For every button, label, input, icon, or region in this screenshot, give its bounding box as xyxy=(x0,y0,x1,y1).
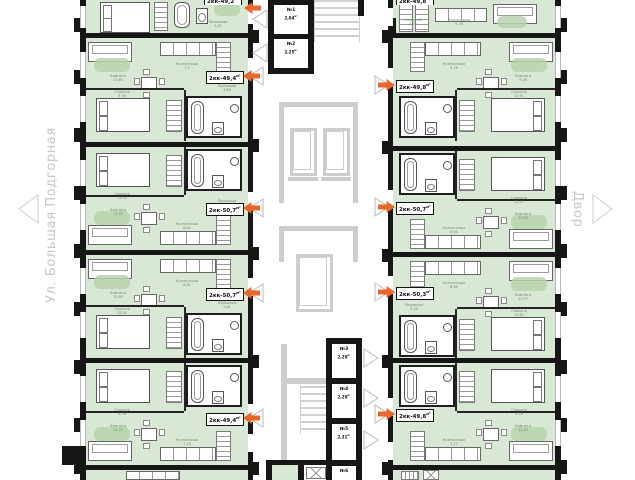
party-wall xyxy=(80,358,253,363)
balcony-cell: №22,25м² xyxy=(274,39,308,68)
service-wall xyxy=(298,465,304,480)
window xyxy=(80,376,86,402)
window xyxy=(555,312,561,338)
chair-icon xyxy=(134,213,140,220)
rug-icon xyxy=(511,58,547,72)
chair-icon xyxy=(476,78,482,85)
kitchen-counter-icon xyxy=(425,261,481,275)
rug-icon xyxy=(497,16,527,28)
apartment-partial xyxy=(86,470,248,480)
rug-icon xyxy=(94,58,130,72)
elevator-sill xyxy=(288,177,318,181)
wardrobe-icon xyxy=(216,215,231,245)
direction-triangle-left xyxy=(18,194,40,224)
bed-icon xyxy=(491,317,545,351)
window xyxy=(80,312,86,338)
interior-wall xyxy=(86,88,184,90)
party-wall xyxy=(80,465,253,470)
wardrobe-icon xyxy=(166,371,182,403)
room-label: Комната 13,45 xyxy=(515,212,531,220)
balcony-cell: №32,29м² xyxy=(332,344,356,378)
rug-icon xyxy=(511,277,547,291)
sink-icon xyxy=(230,104,239,113)
apartment-L3[interactable]: Спальня 12,01Прихожая 5,61Комната 13,45К… xyxy=(86,147,248,250)
staircase-wall xyxy=(281,344,287,462)
window xyxy=(555,204,561,230)
wall-pier xyxy=(561,418,567,432)
elevator-car xyxy=(290,128,317,176)
sofa-icon xyxy=(88,441,132,461)
toilet-icon xyxy=(212,122,224,135)
service-core-wall xyxy=(279,226,358,231)
door-swing-icon xyxy=(363,348,379,368)
interior-wall xyxy=(455,151,457,199)
wardrobe-icon xyxy=(410,219,425,249)
bed-icon xyxy=(491,98,545,132)
interior-wall xyxy=(86,411,184,413)
room-label: Кухня-ниша 7,17 xyxy=(443,438,465,446)
apartment-R4[interactable]: Комната 12,97Кухня-ниша 8,80Прихожая 5,2… xyxy=(393,257,555,358)
window xyxy=(80,6,86,28)
apartment-L4[interactable]: Комната 13,65Кухня-ниша 8,61Прихожая 5,6… xyxy=(86,255,248,358)
party-wall xyxy=(80,142,253,147)
door-opening xyxy=(248,434,253,452)
apartment-label-badge-cut[interactable]: 2кк-49,8м² xyxy=(396,0,444,5)
bathtub-icon xyxy=(404,370,417,403)
wardrobe-icon xyxy=(459,100,475,132)
chair-icon xyxy=(476,217,482,224)
toilet-icon xyxy=(212,175,224,188)
sofa-icon xyxy=(509,229,553,249)
apartment-label-badge[interactable]: 2кк-49,8м² xyxy=(396,80,434,93)
room-label: Комната 11,25 xyxy=(515,424,531,432)
window xyxy=(555,6,561,28)
wall-pier xyxy=(74,186,80,200)
room-label: Прихожая 5,61 xyxy=(218,301,237,309)
entrance-arrow-icon xyxy=(243,202,260,214)
kitchen-counter-icon xyxy=(126,471,180,480)
room-label: Комната 11,25 xyxy=(110,424,126,432)
chair-icon xyxy=(134,78,140,85)
elevator-sill xyxy=(321,177,351,181)
chair-icon xyxy=(134,429,140,436)
wall-pier xyxy=(561,70,567,84)
staircase-top xyxy=(314,0,360,42)
room-label: Кухня-ниша 8,61 xyxy=(176,222,198,230)
room-label: Спальня 9,76 xyxy=(114,408,130,416)
bathroom-box xyxy=(399,153,455,195)
elevator-car-inner xyxy=(293,131,311,170)
wall-pier xyxy=(253,139,259,152)
wardrobe-icon xyxy=(166,100,182,132)
chair-icon xyxy=(159,295,165,302)
chair-icon xyxy=(485,288,492,294)
apartment-label-badge[interactable]: 2кк-50,3м² xyxy=(396,287,434,300)
window xyxy=(80,420,86,446)
wall-pier xyxy=(358,0,364,16)
dining-table-icon xyxy=(141,212,157,225)
toilet-icon xyxy=(425,179,437,192)
chair-icon xyxy=(485,208,492,214)
entrance-arrow-icon xyxy=(244,2,261,14)
bed-icon xyxy=(491,157,545,191)
wall-pier xyxy=(253,462,259,475)
chair-icon xyxy=(134,295,140,302)
shower-icon xyxy=(423,470,439,480)
bathroom-box xyxy=(399,315,455,357)
room-label: Спальня 12,97 xyxy=(511,196,527,204)
room-label: Комната 12,97 xyxy=(515,293,531,301)
interior-wall xyxy=(455,363,457,411)
building-layer: №12,04м²№22,25м²№32,29м²№42,29м²№52,31м²… xyxy=(0,0,635,480)
sink-icon xyxy=(230,157,239,166)
interior-wall xyxy=(184,363,186,411)
balcony-cell: №42,29м² xyxy=(332,384,356,418)
sink-icon xyxy=(443,161,452,170)
wall-pier xyxy=(561,460,567,474)
party-wall xyxy=(388,252,561,257)
chair-icon xyxy=(485,69,492,75)
bed-icon xyxy=(96,153,150,187)
interior-wall xyxy=(457,88,555,90)
room-label: Прихожая 3,86 xyxy=(218,84,237,92)
chair-icon xyxy=(143,420,150,426)
toilet-icon xyxy=(212,339,224,352)
direction-triangle-right xyxy=(592,194,614,224)
balcony-cell: №12,04м² xyxy=(274,5,308,34)
shower-icon xyxy=(306,467,326,479)
room-label: Кухня-ниша 7,0 xyxy=(176,62,198,70)
wall-pier xyxy=(561,18,567,32)
bathtub-icon xyxy=(174,2,190,28)
interior-wall xyxy=(457,199,555,201)
door-opening xyxy=(388,442,393,460)
toilet-icon xyxy=(425,391,437,404)
room-label: Комната 13,65 xyxy=(110,291,126,299)
bed-icon xyxy=(96,315,150,349)
elevator-lobby-wall xyxy=(279,102,284,203)
sink-icon xyxy=(443,373,452,382)
entrance-arrow-icon xyxy=(243,412,260,424)
apartment-label-badge[interactable]: 2кк-49,8м² xyxy=(396,0,434,5)
party-wall xyxy=(388,465,561,470)
room-label: Комната 13,65 xyxy=(110,74,126,82)
entrance-arrow-icon xyxy=(243,70,260,82)
door-swing-icon xyxy=(252,43,268,63)
window xyxy=(555,376,561,402)
balcony-cell: №6 xyxy=(332,466,356,480)
chair-icon xyxy=(159,78,165,85)
bathtub-icon xyxy=(404,158,417,191)
apartment-partial xyxy=(393,470,555,480)
apartment-label-badge[interactable]: 2кк-50,7м² xyxy=(396,202,434,215)
wall-pier xyxy=(561,128,567,142)
party-wall xyxy=(388,33,561,38)
apartment-label-badge[interactable]: 2кк-49,4м² xyxy=(206,71,244,84)
bed-icon xyxy=(491,369,545,403)
room-label: Кухня-ниша 8,61 xyxy=(176,279,198,287)
kitchen-counter-icon xyxy=(160,447,216,461)
room-label: Кухня-ниша 8,61 xyxy=(443,226,465,234)
chair-icon xyxy=(485,420,492,426)
room-label: Кухня-ниша 8,80 xyxy=(443,281,465,289)
wall-pier xyxy=(74,244,80,258)
bathroom-box xyxy=(399,96,455,138)
room-label: Спальня 9,76 xyxy=(114,90,130,98)
door-swing-icon xyxy=(363,430,379,450)
rug-icon xyxy=(94,275,130,289)
elevator-lobby-wall xyxy=(279,102,358,107)
room-label: Комната 13,45 xyxy=(110,208,126,216)
bathroom-box xyxy=(399,365,455,407)
room-label: Спальня 9,76 xyxy=(511,408,527,416)
wall-pier xyxy=(561,186,567,200)
service-wall xyxy=(266,465,272,480)
window xyxy=(80,204,86,230)
wall-pier xyxy=(561,302,567,316)
bathtub-icon xyxy=(191,101,204,134)
chair-icon xyxy=(143,227,150,233)
kitchen-counter-icon xyxy=(160,259,216,273)
chair-icon xyxy=(485,443,492,449)
sink-icon xyxy=(230,373,239,382)
chair-icon xyxy=(501,78,507,85)
apartment-label-badge[interactable]: 2кк-50,7м² xyxy=(206,203,244,216)
kitchen-counter-icon xyxy=(425,235,481,249)
service-core-wall xyxy=(279,231,284,262)
window xyxy=(555,52,561,78)
wardrobe-icon xyxy=(459,371,475,403)
service-shaft-inner xyxy=(299,257,327,306)
wall-pier xyxy=(74,360,80,374)
chair-icon xyxy=(501,429,507,436)
bathroom-box xyxy=(186,365,242,407)
balcony-area: 2,25м² xyxy=(274,48,308,54)
wall-pier xyxy=(253,30,259,43)
interior-wall xyxy=(86,305,184,307)
wardrobe-icon xyxy=(166,155,182,187)
interior-wall xyxy=(457,411,555,413)
service-shaft xyxy=(296,254,333,312)
wall-pier xyxy=(561,360,567,374)
balcony-number: №6 xyxy=(332,469,356,475)
chair-icon xyxy=(143,443,150,449)
wall-pier xyxy=(382,462,388,475)
balcony-area: 2,29м² xyxy=(332,353,356,359)
bathroom-box xyxy=(186,96,242,138)
interior-wall xyxy=(457,307,555,309)
staircase-wall xyxy=(281,378,331,384)
window xyxy=(555,268,561,294)
dining-table-icon xyxy=(483,216,499,229)
kitchen-counter-icon xyxy=(160,231,216,245)
chair-icon xyxy=(501,217,507,224)
balcony-area: 2,04м² xyxy=(274,14,308,20)
wardrobe-icon xyxy=(154,2,168,31)
staircase-bottom xyxy=(300,386,328,434)
window xyxy=(80,96,86,122)
kitchen-counter-icon xyxy=(425,42,481,56)
toilet-icon xyxy=(425,341,437,354)
elevator-car-inner xyxy=(326,131,344,170)
wall-pier xyxy=(382,30,388,43)
sink-icon xyxy=(230,321,239,330)
window xyxy=(555,420,561,446)
bathtub-icon xyxy=(404,101,417,134)
bathroom-box xyxy=(186,149,242,191)
window xyxy=(80,268,86,294)
bathroom-box xyxy=(186,313,242,355)
chair-icon xyxy=(476,297,482,304)
service-core-wall xyxy=(353,231,358,262)
room-label: Кухня-ниша 5,28 xyxy=(448,18,470,26)
apartment-label-badge[interactable]: 2кк-49,4м² xyxy=(206,413,244,426)
balcony-cell: №52,31м² xyxy=(332,424,356,460)
sofa-icon xyxy=(88,225,132,245)
kitchen-counter-icon xyxy=(425,447,481,461)
room-label: Спальня 12,01 xyxy=(114,192,130,200)
party-wall xyxy=(388,146,561,151)
party-wall xyxy=(80,33,253,38)
chair-icon xyxy=(485,231,492,237)
wardrobe-icon xyxy=(410,42,425,72)
room-label: Спальня 12,81 xyxy=(511,309,527,317)
wall-pier xyxy=(561,244,567,258)
wardrobe-icon xyxy=(216,259,231,289)
wardrobe-icon xyxy=(410,431,425,461)
elevator-car xyxy=(323,128,350,176)
chair-icon xyxy=(501,297,507,304)
chair-icon xyxy=(143,286,150,292)
apartment-L2[interactable]: Комната 13,65Кухня-ниша 7,0Прихожая 3,86… xyxy=(86,38,248,142)
room-label: Спальня 12,91 xyxy=(114,307,130,315)
room-label: Прихожая 5,26 xyxy=(405,303,424,311)
window xyxy=(80,52,86,78)
toilet-icon xyxy=(196,8,208,24)
balcony-area: 2,29м² xyxy=(332,393,356,399)
wardrobe-icon xyxy=(216,431,231,461)
entrance-arrow-icon xyxy=(378,79,395,91)
room-label: Кухня-ниша 7,18 xyxy=(176,438,198,446)
interior-wall xyxy=(455,309,457,358)
toilet-icon xyxy=(425,122,437,135)
balcony-area: 2,31м² xyxy=(332,433,356,439)
kitchen-counter-icon xyxy=(160,42,216,56)
wall-pier xyxy=(253,355,259,368)
wall-pier xyxy=(382,141,388,154)
chair-icon xyxy=(159,429,165,436)
wardrobe-icon xyxy=(216,42,231,72)
toilet-icon xyxy=(212,391,224,404)
floor-plan-canvas: Ул. Большая Подгорная Двор №12,04м²№22,2… xyxy=(0,0,635,480)
sink-icon xyxy=(443,104,452,113)
bed-icon xyxy=(96,98,150,132)
dining-table-icon xyxy=(483,428,499,441)
apartment-label-badge[interactable]: 2кк-50,7м² xyxy=(206,288,244,301)
entrance-arrow-icon xyxy=(378,286,395,298)
service-room xyxy=(272,465,298,480)
apartment-label-badge[interactable]: 2кк-49,2м² xyxy=(204,0,242,5)
wardrobe-icon xyxy=(166,317,182,349)
room-label: Прихожая 5,61 xyxy=(209,20,228,28)
radiator-icon xyxy=(401,471,419,480)
wall-pier xyxy=(74,460,80,474)
interior-wall xyxy=(86,195,184,197)
sofa-icon xyxy=(509,441,553,461)
window xyxy=(80,160,86,186)
chair-icon xyxy=(143,204,150,210)
chair-icon xyxy=(159,213,165,220)
wall-pier xyxy=(74,128,80,142)
interior-wall xyxy=(184,147,186,195)
party-wall xyxy=(80,250,253,255)
wardrobe-icon xyxy=(459,159,475,191)
room-label: Комната 9,28 xyxy=(515,74,531,82)
wall-pier xyxy=(382,355,388,368)
bathtub-icon xyxy=(191,370,204,403)
window xyxy=(555,96,561,122)
wall-pier xyxy=(253,247,259,260)
sink-icon xyxy=(443,323,452,332)
chair-icon xyxy=(476,429,482,436)
party-wall xyxy=(388,358,561,363)
apartment-label-badge[interactable]: 2кк-49,8м² xyxy=(396,409,434,422)
elevator-lobby-wall xyxy=(353,102,358,203)
wall-pier xyxy=(382,249,388,262)
room-label: Кухня-ниша 5,28 xyxy=(443,62,465,70)
door-opening xyxy=(388,8,393,26)
bathtub-icon xyxy=(191,154,204,187)
entrance-arrow-icon xyxy=(243,287,260,299)
chair-icon xyxy=(143,69,150,75)
wardrobe-icon xyxy=(459,319,475,351)
bathtub-icon xyxy=(191,318,204,351)
bed-icon xyxy=(100,2,150,33)
room-label: Гардероб 2,72 xyxy=(404,18,422,26)
interior-wall xyxy=(455,90,457,141)
bathtub-icon xyxy=(404,320,417,353)
window xyxy=(555,160,561,186)
room-label: Спальня 12,91 xyxy=(511,90,527,98)
entrance-arrow-icon xyxy=(378,201,395,213)
dining-table-icon xyxy=(141,428,157,441)
entrance-arrow-icon xyxy=(378,408,395,420)
bed-icon xyxy=(96,369,150,403)
